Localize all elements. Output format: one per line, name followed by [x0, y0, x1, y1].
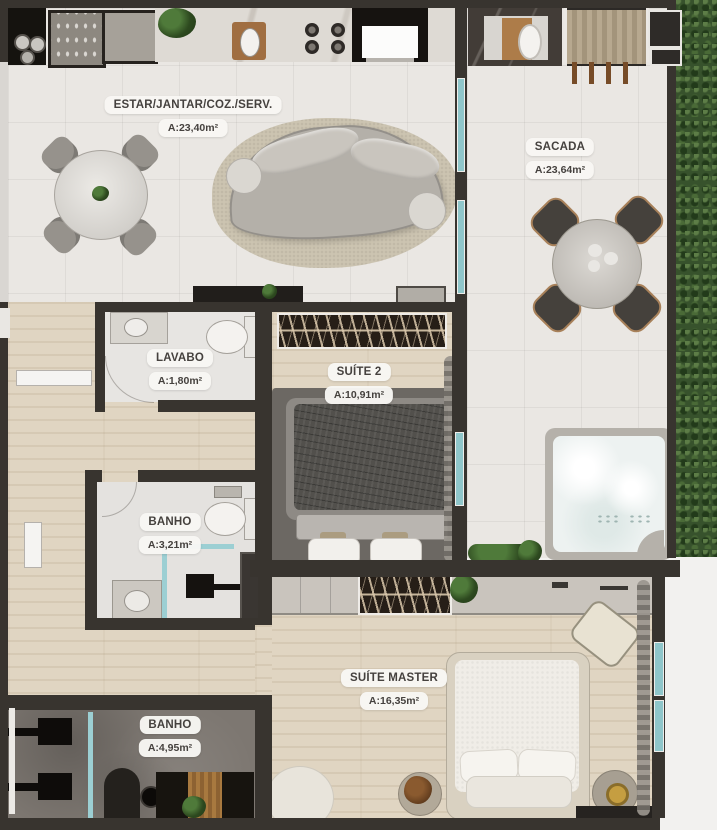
shower-glass-icon — [162, 549, 167, 618]
utility-box-icon — [650, 48, 682, 66]
closet-divider — [300, 577, 301, 613]
room-label-sacada: SACADA A:23,64m² — [526, 138, 594, 179]
room-name: SUÍTE 2 — [328, 363, 391, 381]
wall-lavabo-left — [95, 302, 105, 412]
wall-master-north — [250, 560, 680, 577]
oven-handle-icon — [366, 58, 414, 62]
wall-masterbath-right — [255, 695, 272, 830]
bench-leg-icon — [623, 62, 628, 84]
wall-living-south — [95, 302, 467, 312]
blanket-fold-icon — [466, 776, 572, 808]
shower-icon — [186, 574, 214, 598]
door-slot — [9, 708, 15, 814]
master-door-opening — [255, 625, 272, 695]
room-area: A:4,95m² — [139, 739, 201, 757]
room-label-suite-master: SUÍTE MASTER A:16,35m² — [341, 669, 447, 710]
washbasin-icon — [124, 318, 148, 337]
cooktop-icon — [331, 23, 345, 37]
outside-area — [667, 558, 717, 830]
wall-master-left-stub — [258, 577, 272, 625]
jacuzzi-jets-icon — [596, 514, 622, 524]
wall-bath1-north-a — [85, 470, 102, 482]
wall-bath1-left — [85, 470, 97, 630]
wall-corridor-south — [0, 695, 272, 710]
wall-suite2-left — [255, 302, 272, 575]
dishwasher-icon — [48, 10, 106, 68]
bench-leg-icon — [589, 62, 594, 84]
prep-sink-icon — [240, 28, 260, 57]
sliding-door-glass-icon — [457, 200, 465, 294]
refrigerator-icon — [102, 10, 158, 64]
window-glass-icon — [654, 700, 664, 752]
floor-plan: ESTAR/JANTAR/COZ./SERV. A:23,40m² SACADA… — [0, 0, 717, 830]
side-table-icon — [226, 158, 262, 194]
decor-item — [600, 586, 628, 590]
cooktop-icon — [305, 23, 319, 37]
cooktop-icon — [305, 40, 319, 54]
jacuzzi-jets-icon — [628, 514, 654, 524]
utility-box-icon — [648, 10, 682, 48]
toilet-icon — [204, 502, 246, 536]
room-name: SACADA — [526, 138, 594, 156]
wall-bath1-north-b — [138, 470, 257, 482]
footboard-bench-icon — [296, 514, 448, 540]
window-glass-icon — [455, 432, 464, 506]
door-leaf-icon — [16, 370, 92, 386]
room-name: SUÍTE MASTER — [341, 669, 447, 687]
room-area: A:23,40m² — [159, 119, 227, 137]
room-name: ESTAR/JANTAR/COZ./SERV. — [105, 96, 282, 114]
window-opening — [0, 308, 10, 338]
room-area: A:10,91m² — [325, 386, 393, 404]
bench-leg-icon — [572, 62, 577, 84]
deck-bench-icon — [567, 8, 646, 66]
media-console-icon — [193, 286, 303, 302]
outdoor-tub-icon — [518, 24, 542, 60]
room-label-estar: ESTAR/JANTAR/COZ./SERV. A:23,40m² — [105, 96, 282, 137]
wall-bottom — [0, 818, 660, 830]
shower-icon — [38, 773, 72, 800]
room-name: BANHO — [139, 716, 200, 734]
shower-glass-icon — [88, 712, 93, 818]
wall-master-right — [652, 577, 665, 818]
room-area: A:1,80m² — [149, 372, 211, 390]
double-bed-icon — [294, 404, 448, 510]
wall-bath1-south — [85, 618, 272, 630]
wardrobe-icon — [277, 313, 447, 349]
lamp-icon — [606, 783, 629, 806]
cooktop-icon — [331, 40, 345, 54]
side-table-icon — [408, 192, 446, 230]
closet-hangers-icon — [358, 575, 452, 615]
washbasin-icon — [124, 590, 150, 612]
room-area: A:3,21m² — [139, 536, 201, 554]
hedge-strip — [676, 0, 717, 557]
wall-top — [0, 0, 676, 8]
toilet-icon — [104, 768, 140, 818]
bench-leg-icon — [606, 62, 611, 84]
sliding-door-glass-icon — [457, 78, 465, 172]
plate-icon — [604, 252, 618, 265]
oven-door-icon — [362, 26, 418, 58]
drain-icon — [20, 50, 35, 65]
window-band-left — [0, 62, 8, 302]
curtain-icon — [637, 580, 650, 816]
room-name: BANHO — [139, 513, 200, 531]
decor-item — [552, 582, 568, 588]
window-glass-icon — [654, 642, 664, 696]
room-label-banho1: BANHO A:3,21m² — [139, 513, 201, 554]
room-area: A:16,35m² — [360, 692, 428, 710]
room-label-suite2: SUÍTE 2 A:10,91m² — [325, 363, 393, 404]
plate-icon — [588, 244, 602, 257]
wall-right-upper — [667, 0, 676, 558]
room-area: A:23,64m² — [526, 161, 594, 179]
closet-divider — [330, 577, 331, 613]
door-leaf-icon — [24, 522, 42, 568]
wall-lavabo-south — [158, 400, 265, 412]
plate-icon — [588, 260, 600, 272]
room-name: LAVABO — [147, 349, 213, 367]
shelf-icon — [214, 486, 242, 498]
room-label-lavabo: LAVABO A:1,80m² — [147, 349, 213, 390]
room-label-banho-master: BANHO A:4,95m² — [139, 716, 201, 757]
shower-icon — [38, 718, 72, 745]
